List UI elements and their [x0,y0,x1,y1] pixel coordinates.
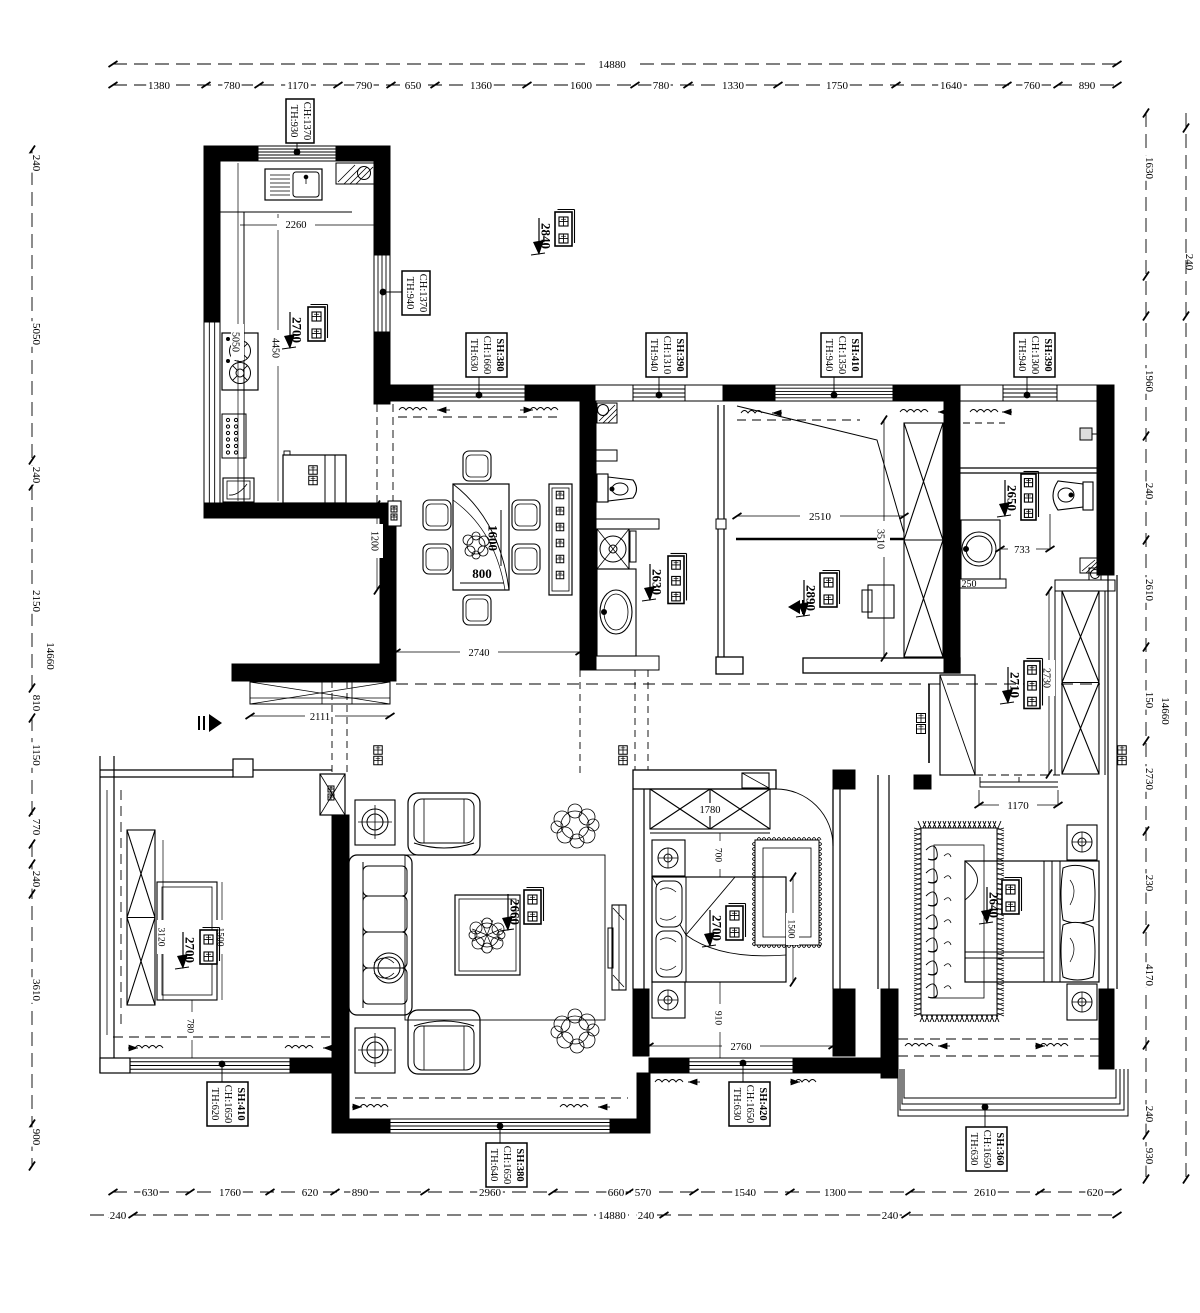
svg-text:780: 780 [653,80,670,92]
svg-text:TH:630: TH:630 [968,1133,979,1166]
svg-text:TH:640: TH:640 [488,1149,499,1182]
svg-text:770: 770 [30,819,42,836]
svg-text:1170: 1170 [1007,800,1029,812]
svg-text:TH:630: TH:630 [468,339,479,372]
svg-text:1380: 1380 [148,80,171,92]
svg-text:TH:620: TH:620 [209,1088,220,1121]
svg-text:240: 240 [30,155,42,172]
svg-text:1330: 1330 [722,80,745,92]
svg-text:230: 230 [1143,875,1155,892]
svg-text:900: 900 [30,1129,42,1146]
svg-text:760: 760 [1024,80,1041,92]
svg-text:1500: 1500 [786,920,796,939]
svg-text:1750: 1750 [826,80,849,92]
svg-text:5050: 5050 [230,332,241,352]
svg-text:CH:1300: CH:1300 [1029,336,1040,375]
svg-text:1540: 1540 [734,1187,757,1199]
svg-text:890: 890 [352,1187,369,1199]
svg-text:630: 630 [142,1187,159,1199]
svg-text:2260: 2260 [286,220,307,231]
svg-text:TH:630: TH:630 [731,1088,742,1121]
svg-text:2960: 2960 [479,1187,502,1199]
svg-text:3120: 3120 [156,928,166,947]
svg-text:660: 660 [608,1187,625,1199]
svg-text:620: 620 [1087,1187,1104,1199]
svg-text:3510: 3510 [875,529,886,549]
svg-text:CH:1650: CH:1650 [222,1085,233,1124]
svg-text:570: 570 [635,1187,652,1199]
svg-text:SH:390: SH:390 [674,338,685,371]
svg-text:CH:1310: CH:1310 [661,336,672,375]
svg-text:910: 910 [713,1011,723,1026]
svg-text:TH:940: TH:940 [404,277,415,310]
svg-text:CH:1650: CH:1650 [501,1146,512,1185]
svg-text:CH:1370: CH:1370 [417,274,428,313]
svg-text:1640: 1640 [940,80,963,92]
svg-text:14880: 14880 [598,1210,626,1222]
svg-text:240: 240 [30,467,42,484]
svg-text:TH:940: TH:940 [648,339,659,372]
svg-text:2111: 2111 [310,712,330,723]
svg-text:SH:420: SH:420 [757,1087,768,1120]
svg-text:4450: 4450 [270,338,281,358]
svg-text:240: 240 [110,1210,127,1222]
svg-text:TH:940: TH:940 [823,339,834,372]
svg-text:790: 790 [356,80,373,92]
svg-text:14660: 14660 [44,642,56,670]
svg-text:CH:1370: CH:1370 [301,102,312,141]
svg-text:780: 780 [224,80,241,92]
svg-text:2510: 2510 [809,511,832,523]
svg-text:TH:930: TH:930 [288,105,299,138]
svg-text:733: 733 [1014,545,1030,556]
svg-text:5050: 5050 [30,323,42,346]
svg-text:810: 810 [30,695,42,712]
svg-text:SH:410: SH:410 [849,338,860,371]
svg-text:1300: 1300 [824,1187,847,1199]
svg-text:1600: 1600 [485,525,500,551]
svg-text:240: 240 [1183,254,1195,271]
svg-text:890: 890 [1079,80,1096,92]
svg-text:CH:1350: CH:1350 [836,336,847,375]
svg-text:150: 150 [1143,692,1155,709]
svg-text:1360: 1360 [470,80,493,92]
svg-text:1760: 1760 [219,1187,242,1199]
svg-text:2730: 2730 [1143,768,1155,791]
svg-text:4170: 4170 [1143,964,1155,987]
svg-text:930: 930 [1143,1148,1155,1165]
svg-text:CH:1650: CH:1650 [744,1085,755,1124]
svg-text:240: 240 [638,1210,655,1222]
svg-text:2740: 2740 [469,648,490,659]
svg-text:3610: 3610 [30,979,42,1002]
svg-text:620: 620 [302,1187,319,1199]
svg-text:240: 240 [882,1210,899,1222]
svg-text:240: 240 [30,871,42,888]
svg-text:TH:940: TH:940 [1016,339,1027,372]
svg-text:14880: 14880 [598,59,626,71]
svg-text:700: 700 [713,848,723,863]
svg-text:SH:410: SH:410 [235,1087,246,1120]
svg-text:SH:390: SH:390 [1042,338,1053,371]
svg-text:1960: 1960 [1143,370,1155,393]
svg-text:CH:1650: CH:1650 [981,1130,992,1169]
svg-text:2760: 2760 [731,1042,752,1053]
svg-text:650: 650 [405,80,422,92]
svg-text:SH:380: SH:380 [514,1148,525,1181]
svg-text:SH:360: SH:360 [994,1132,1005,1165]
svg-text:SH:380: SH:380 [494,338,505,371]
svg-text:14660: 14660 [1159,697,1171,725]
svg-text:1630: 1630 [1143,157,1155,180]
svg-text:1780: 1780 [700,805,721,816]
svg-text:CH:1660: CH:1660 [481,336,492,375]
svg-text:240: 240 [1143,483,1155,500]
svg-text:1150: 1150 [30,744,42,766]
svg-text:2610: 2610 [974,1187,997,1199]
svg-text:800: 800 [472,566,492,581]
svg-text:1170: 1170 [287,80,309,92]
svg-text:250: 250 [962,579,977,590]
svg-text:1200: 1200 [369,531,380,551]
svg-text:1600: 1600 [570,80,593,92]
svg-text:780: 780 [185,1019,195,1034]
svg-text:240: 240 [1143,1106,1155,1123]
svg-text:2610: 2610 [1143,579,1155,602]
svg-text:2150: 2150 [30,590,42,613]
